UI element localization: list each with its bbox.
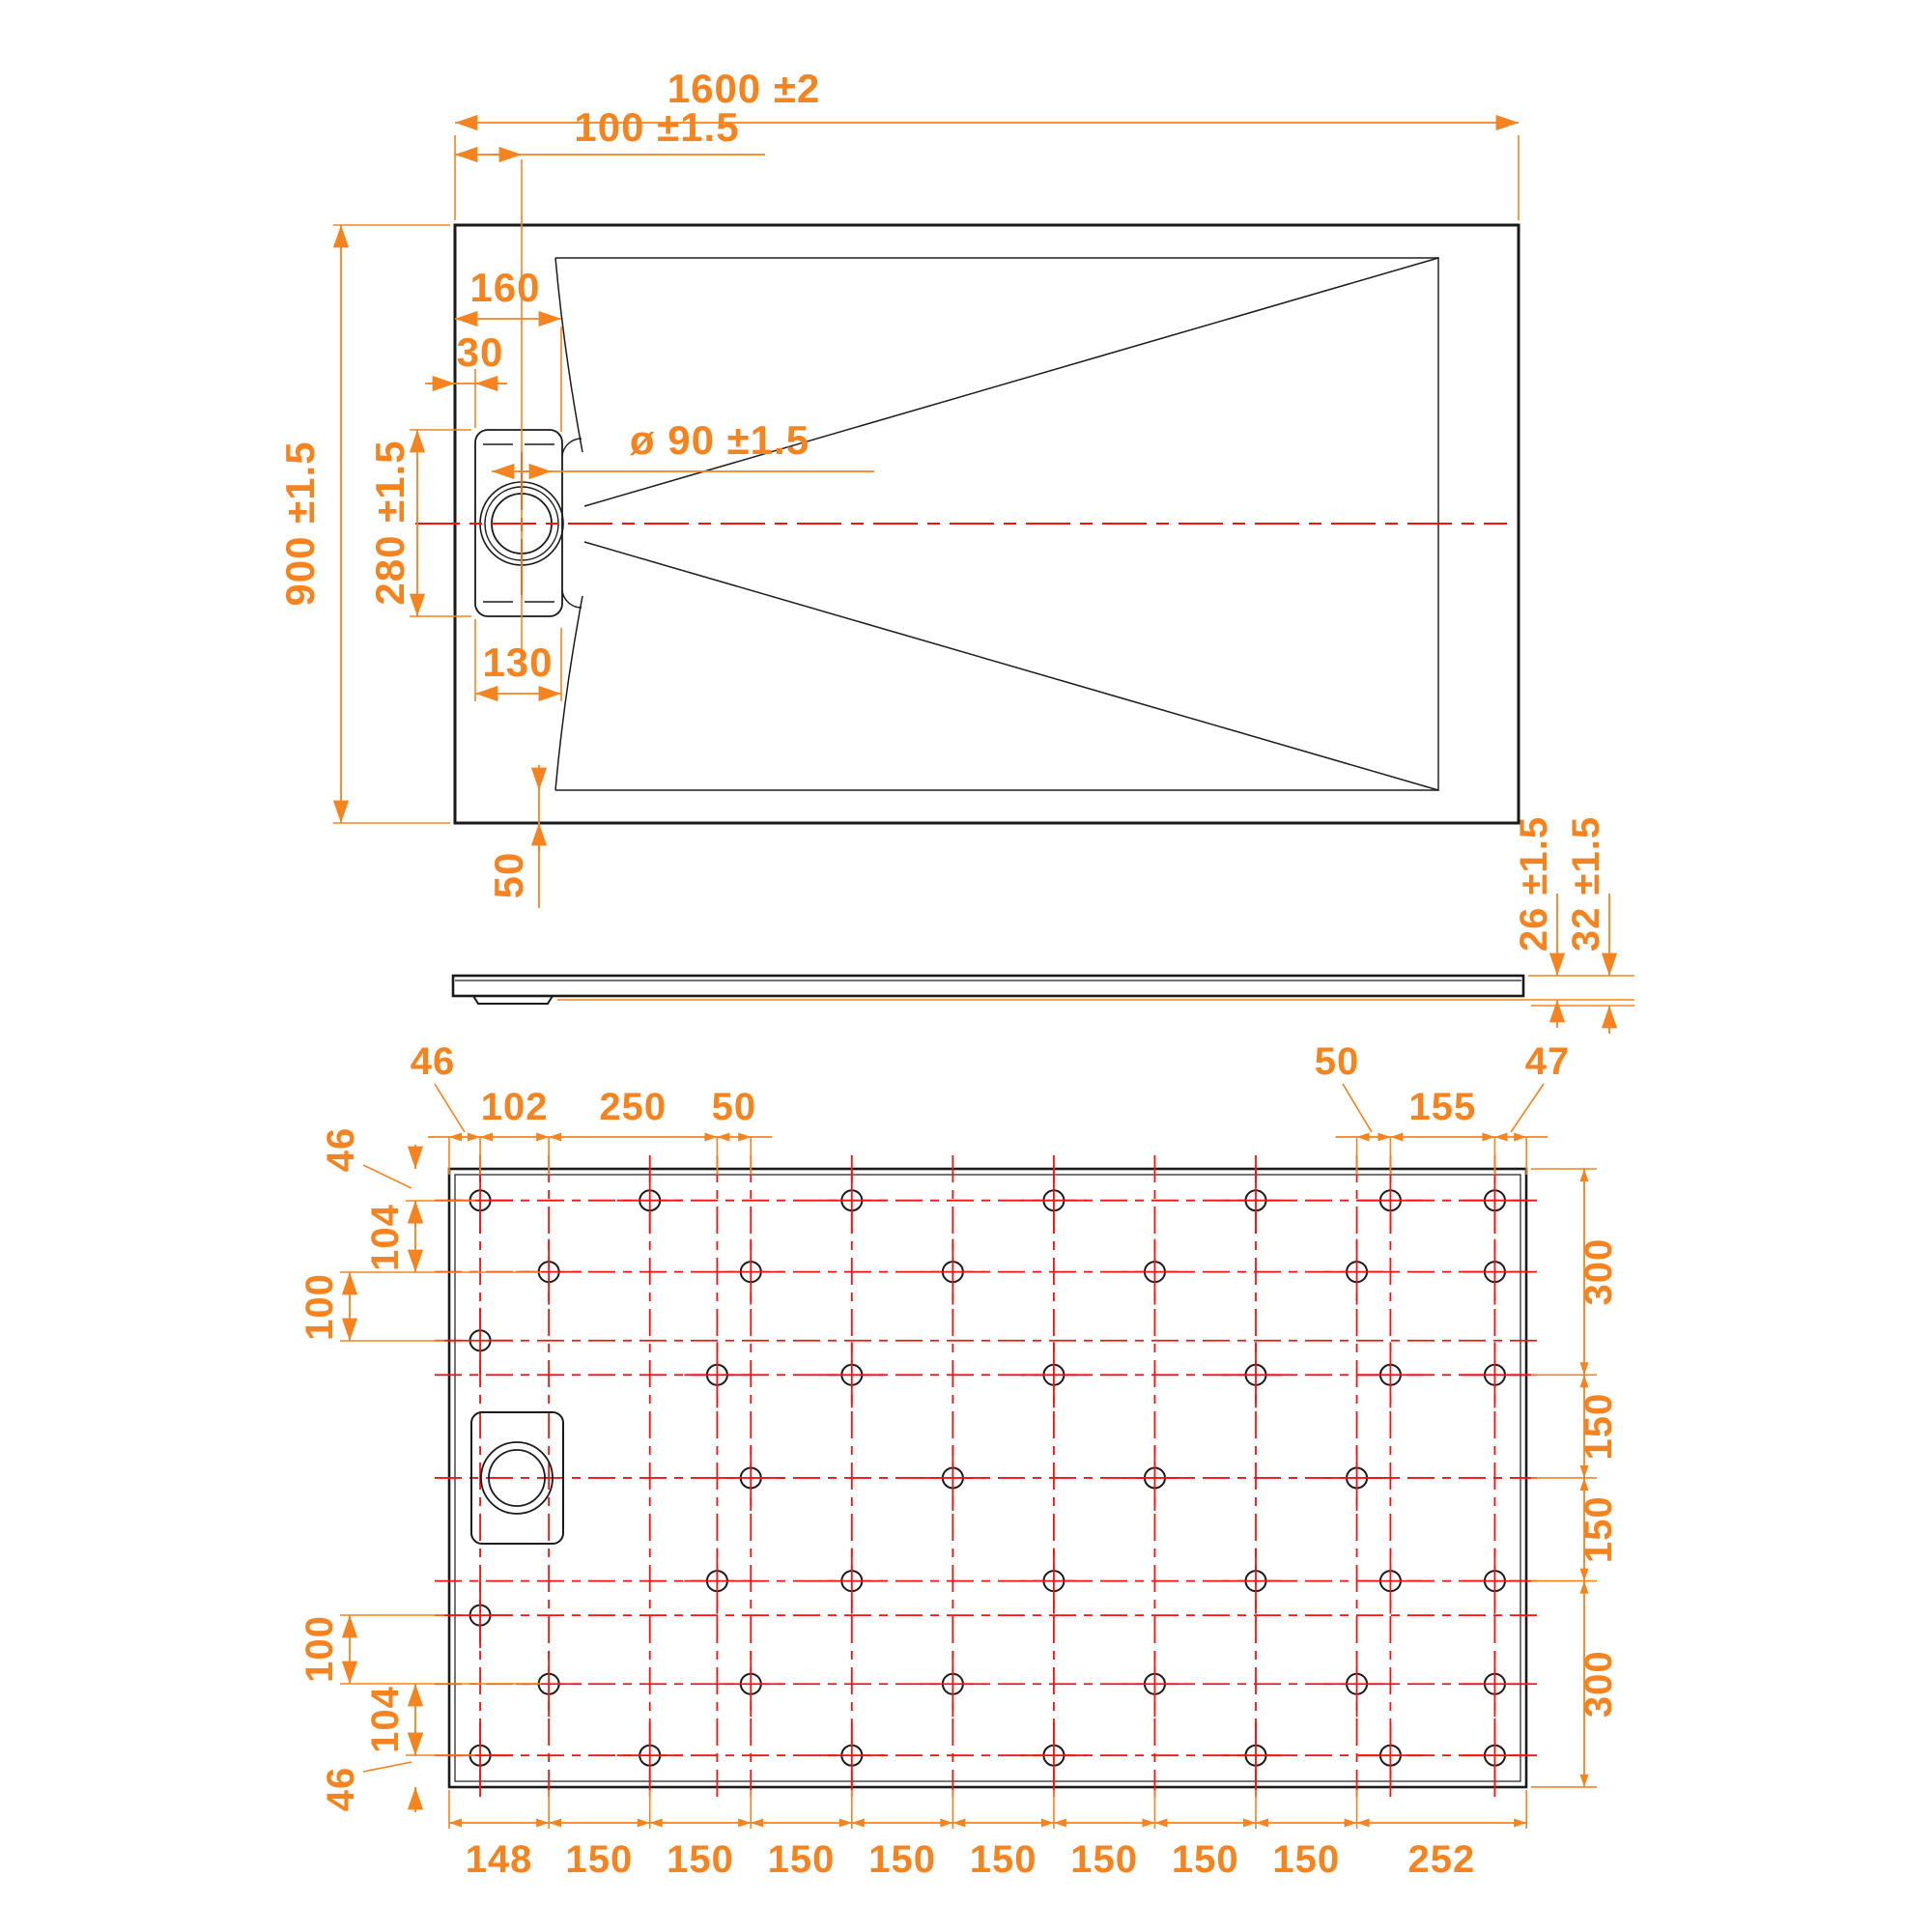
right-chain-label: 300	[1577, 1650, 1620, 1718]
bottom-grid-centerlines	[435, 1155, 1542, 1804]
top-view: 1600 ±2 100 ±1.5 160 30 900 ±1.5	[277, 66, 1519, 908]
label-cassette-length: 280 ±1.5	[367, 440, 412, 605]
leader-top-right-50: 50	[1315, 1040, 1372, 1132]
right-chain-label: 150	[1577, 1495, 1620, 1563]
label-edge-to-cassette: 30	[457, 329, 504, 375]
label-overall-depth: 900 ±1.5	[277, 440, 323, 606]
label-left-46-top: 46	[320, 1127, 362, 1173]
cassette-ear-bottom	[562, 590, 582, 608]
label-top-left-46: 46	[411, 1040, 456, 1083]
dim-left-104-top: 104	[340, 1201, 541, 1272]
right-chain-label: 300	[1577, 1238, 1620, 1306]
label-rim-border: 50	[486, 852, 531, 899]
leader-top-right-47: 47	[1511, 1040, 1570, 1132]
label-drain-offset: 100 ±1.5	[574, 104, 739, 150]
chain-dim-label: 150	[1070, 1838, 1138, 1881]
label-cassette-width: 130	[482, 639, 553, 685]
chain-dim-label: 50	[712, 1086, 757, 1128]
dim-left-104-bottom: 104	[364, 1684, 475, 1755]
slope-line-top	[584, 258, 1438, 506]
chain-dim-label: 250	[599, 1086, 667, 1128]
leader-top-left-46: 46	[411, 1040, 465, 1132]
chain-dim-label: 150	[1172, 1838, 1239, 1881]
label-top-right-50: 50	[1315, 1040, 1360, 1083]
label-left-104-bottom: 104	[364, 1686, 407, 1753]
dim-left-100-bottom: 100	[298, 1615, 541, 1684]
right-chain-label: 150	[1577, 1393, 1620, 1461]
chain-dim-label: 150	[970, 1838, 1037, 1881]
chain-dim-label: 252	[1408, 1838, 1476, 1881]
dim-edge-to-cassette: 30	[425, 329, 507, 428]
dim-cassette-width: 130	[475, 619, 561, 701]
chain-dim-label: 155	[1409, 1086, 1477, 1128]
label-left-100-top: 100	[298, 1273, 341, 1341]
dim-drain-offset: 100 ±1.5	[455, 104, 765, 676]
side-view: 26 ±1.5 32 ±1.5	[453, 816, 1634, 1034]
label-drain-diameter: ø 90 ±1.5	[630, 417, 810, 463]
floor-funnel-top	[555, 258, 582, 452]
drawing-sheet: 1600 ±2 100 ±1.5 160 30 900 ±1.5	[0, 0, 1932, 1932]
chain-dim-label: 150	[768, 1838, 836, 1881]
label-total-thickness: 32 ±1.5	[1565, 816, 1607, 952]
label-left-104-top: 104	[364, 1204, 407, 1271]
cad-canvas: 1600 ±2 100 ±1.5 160 30 900 ±1.5	[0, 0, 1932, 1932]
chain-dim-label: 150	[1272, 1838, 1340, 1881]
profile-body	[453, 976, 1523, 996]
label-edge-to-floor: 160	[469, 265, 540, 310]
chain-dim-label: 102	[481, 1086, 549, 1128]
label-body-thickness: 26 ±1.5	[1513, 816, 1555, 952]
slope-line-bottom	[584, 542, 1438, 790]
label-top-right-47: 47	[1525, 1040, 1571, 1083]
bottom-generated-dims: 1481501501501501501501501502521022505015…	[428, 1086, 1620, 1881]
chain-dim-label: 150	[667, 1838, 734, 1881]
label-left-46-bottom: 46	[320, 1767, 362, 1812]
chain-dim-label: 150	[868, 1838, 936, 1881]
dim-left-100-top: 100	[298, 1272, 444, 1341]
cassette-ear-top	[562, 439, 582, 456]
dim-total-thickness: 32 ±1.5	[1565, 816, 1609, 1034]
chain-dim-label: 148	[466, 1838, 533, 1881]
chain-dim-label: 150	[566, 1838, 634, 1881]
label-left-100-bottom: 100	[298, 1615, 341, 1683]
bottom-view: 1481501501501501501501501502521022505015…	[298, 1040, 1620, 1881]
top-view-centerlines	[415, 452, 1507, 595]
dim-rim-border: 50	[486, 765, 539, 908]
